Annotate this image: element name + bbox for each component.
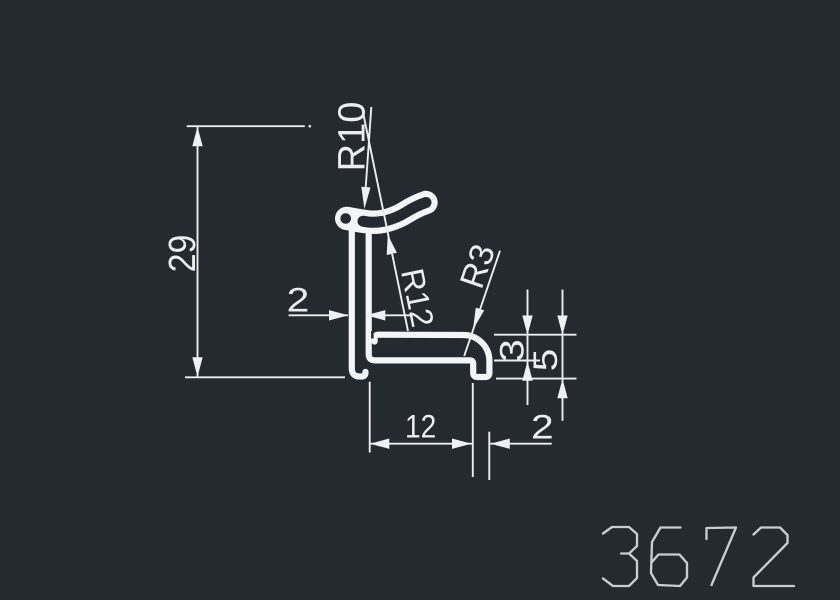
- svg-text:5: 5: [526, 349, 564, 372]
- svg-text:29: 29: [160, 235, 203, 273]
- svg-text:R10: R10: [332, 102, 374, 172]
- svg-text:2: 2: [287, 281, 310, 319]
- svg-text:12: 12: [405, 410, 436, 445]
- svg-text:2: 2: [531, 408, 554, 446]
